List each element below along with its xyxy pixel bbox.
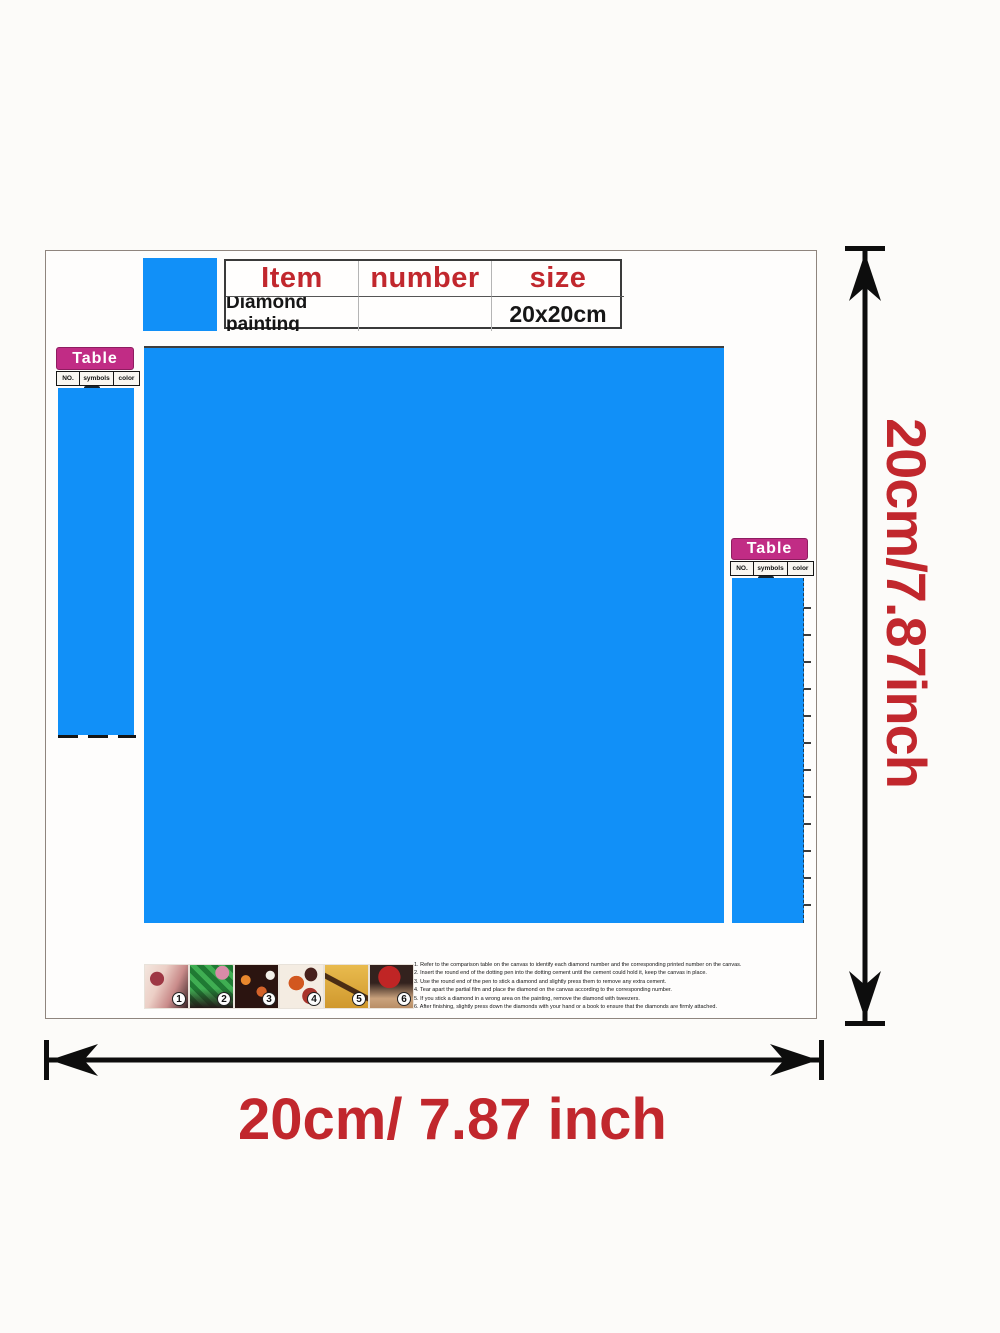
right-header-color: color <box>788 561 814 576</box>
step-number-badge: 3 <box>262 992 276 1006</box>
step-number-badge: 4 <box>307 992 321 1006</box>
left-header-symbols: symbols <box>80 371 114 386</box>
step-photo-2: 2 <box>189 964 234 1009</box>
spec-header-number: number <box>358 261 491 297</box>
horizontal-dimension-arrow <box>38 1036 830 1084</box>
spec-header-item: Item <box>226 261 358 297</box>
product-dimension-diagram: Item number size Diamond painting 20x20c… <box>0 0 1000 1333</box>
step-number-badge: 2 <box>217 992 231 1006</box>
left-header-color: color <box>114 371 140 386</box>
canvas-board: Item number size Diamond painting 20x20c… <box>45 250 817 1019</box>
right-color-strip <box>732 578 804 923</box>
instruction-line: 6. After finishing, slightly press down … <box>414 1003 759 1011</box>
instruction-text: 1. Refer to the comparison table on the … <box>414 961 759 1011</box>
left-table-header: NO. symbols color <box>56 371 140 386</box>
vertical-dimension-label: 20cm/7.87inch <box>874 418 939 788</box>
step-photo-3: 3 <box>234 964 279 1009</box>
left-table-label: Table <box>56 347 134 370</box>
step-photo-1: 1 <box>144 964 189 1009</box>
printed-canvas <box>144 346 724 923</box>
spec-table: Item number size Diamond painting 20x20c… <box>224 259 622 329</box>
step-photo-4: 4 <box>279 964 324 1009</box>
spec-value-number <box>358 297 491 331</box>
right-table-header: NO. symbols color <box>730 561 814 576</box>
left-strip-ruler-marks <box>58 735 136 738</box>
step-number-badge: 1 <box>172 992 186 1006</box>
step-photo-5: 5 <box>324 964 369 1009</box>
horizontal-dimension-label: 20cm/ 7.87 inch <box>238 1086 667 1153</box>
right-table-label: Table <box>731 538 808 560</box>
spec-header-size: size <box>491 261 624 297</box>
instruction-step-photos: 1 2 3 4 5 6 <box>144 964 414 1009</box>
step-number-badge: 5 <box>352 992 366 1006</box>
instruction-line: 2. Insert the round end of the dotting p… <box>414 969 759 977</box>
left-color-strip <box>58 388 134 735</box>
instruction-line: 3. Use the round end of the pen to stick… <box>414 978 759 986</box>
left-header-no: NO. <box>56 371 80 386</box>
spec-value-size: 20x20cm <box>491 297 624 331</box>
right-header-symbols: symbols <box>754 561 788 576</box>
instruction-line: 4. Tear apart the partial film and place… <box>414 986 759 994</box>
step-photo-6: 6 <box>369 964 414 1009</box>
spec-value-item: Diamond painting <box>226 297 358 331</box>
right-header-no: NO. <box>730 561 754 576</box>
step-number-badge: 6 <box>397 992 411 1006</box>
color-swatch-blue <box>143 258 217 331</box>
instruction-line: 1. Refer to the comparison table on the … <box>414 961 759 969</box>
instruction-line: 5. If you stick a diamond in a wrong are… <box>414 995 759 1003</box>
right-strip-ruler-marks <box>804 582 811 923</box>
